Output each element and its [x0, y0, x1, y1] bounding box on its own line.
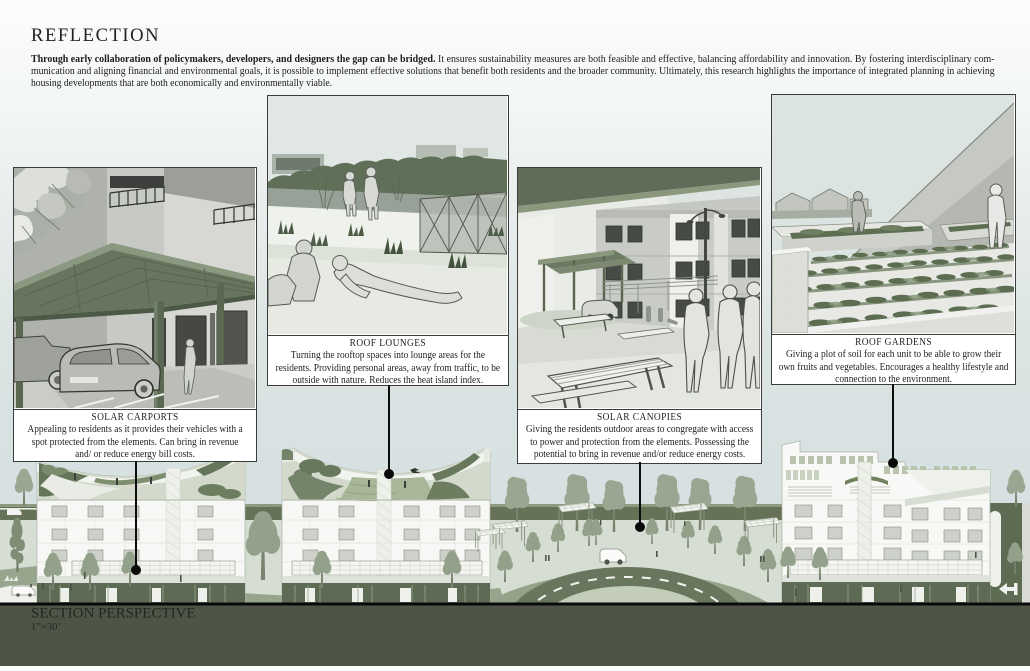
svg-text:SECTION PERSPECTIVE: SECTION PERSPECTIVE — [31, 606, 196, 622]
svg-text:1”=30’: 1”=30’ — [31, 622, 61, 633]
